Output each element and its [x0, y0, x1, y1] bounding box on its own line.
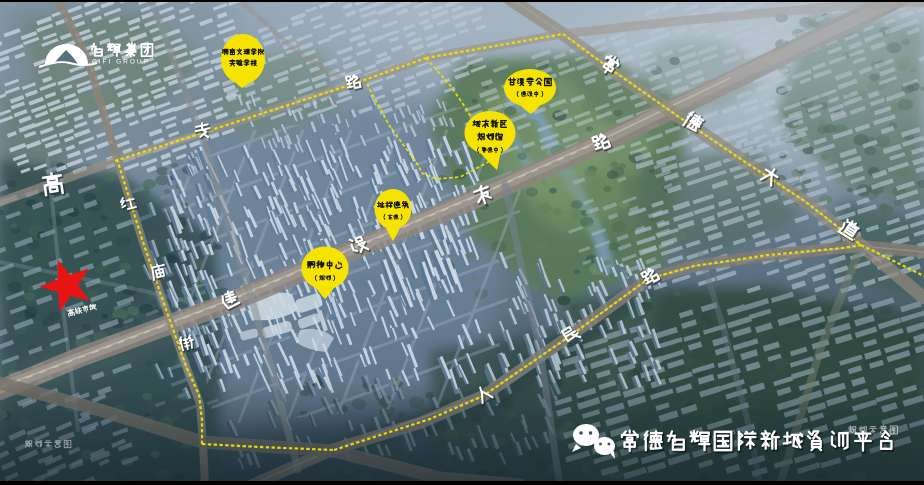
svg-text:CIFI GROUP: CIFI GROUP: [92, 59, 150, 66]
